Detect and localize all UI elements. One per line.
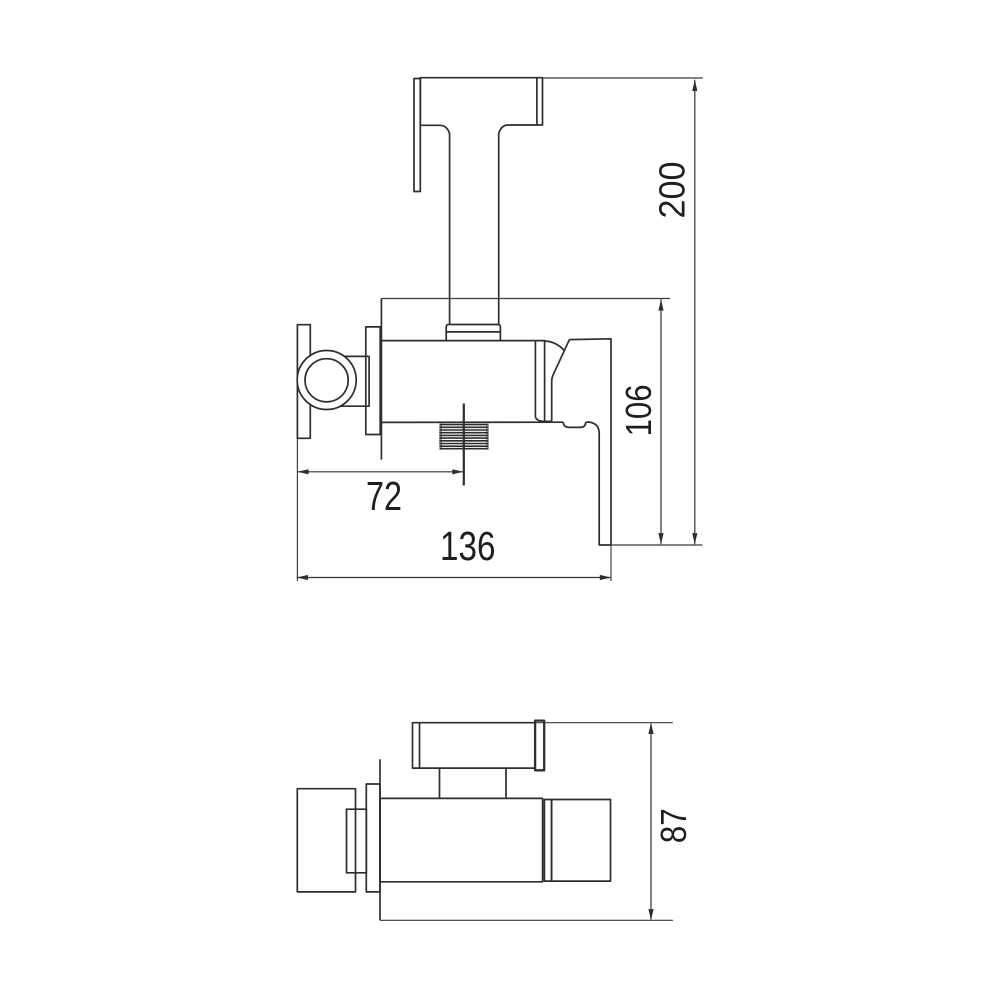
svg-text:136: 136 (440, 523, 496, 569)
svg-text:106: 106 (618, 384, 659, 436)
svg-text:200: 200 (652, 162, 693, 219)
svg-text:72: 72 (366, 473, 402, 519)
svg-text:87: 87 (653, 808, 694, 843)
